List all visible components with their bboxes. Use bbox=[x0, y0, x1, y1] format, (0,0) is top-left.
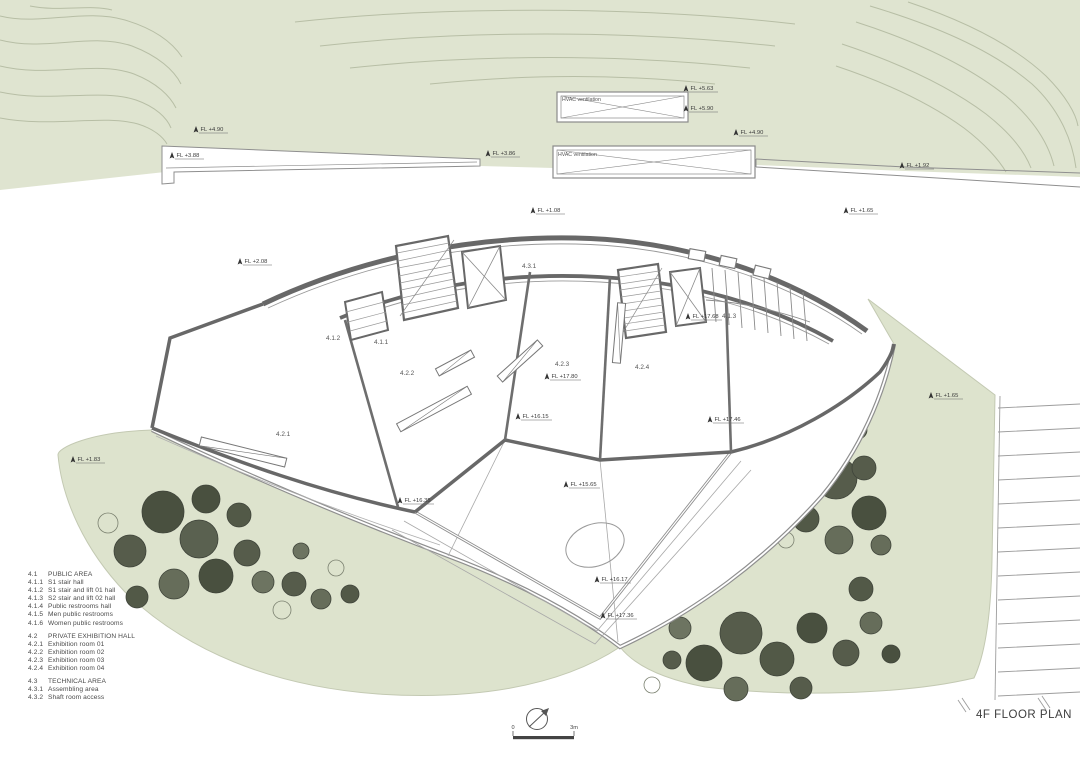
svg-text:FL +1.08: FL +1.08 bbox=[538, 208, 561, 214]
svg-text:FL +4.90: FL +4.90 bbox=[741, 130, 764, 136]
svg-text:FL +4.90: FL +4.90 bbox=[201, 127, 224, 133]
svg-text:FL +3.88: FL +3.88 bbox=[177, 153, 200, 159]
room-label-421: 4.2.1 bbox=[276, 431, 291, 438]
svg-text:FL +17.36: FL +17.36 bbox=[608, 613, 634, 619]
legend-item: 4.1.5Men public restrooms bbox=[28, 611, 135, 619]
lift-shaft-01 bbox=[462, 246, 506, 308]
svg-text:FL +5.63: FL +5.63 bbox=[691, 86, 714, 92]
room-label-413: 4.1.3 bbox=[722, 313, 737, 320]
svg-text:FL +15.65: FL +15.65 bbox=[571, 482, 597, 488]
scale-start-label: 0 bbox=[511, 725, 514, 731]
legend-item: 4.2.3Exhibition room 03 bbox=[28, 657, 135, 665]
legend-section-technical: 4.3TECHNICAL AREA 4.3.1Assembling area 4… bbox=[28, 678, 135, 702]
room-label-431: 4.3.1 bbox=[522, 263, 537, 270]
room-label-411: 4.1.1 bbox=[374, 339, 389, 346]
fl-label-8: FL +1.08 bbox=[531, 207, 565, 214]
room-label-424: 4.2.4 bbox=[635, 364, 650, 371]
svg-text:FL +17.46: FL +17.46 bbox=[715, 417, 741, 423]
svg-text:FL +3.86: FL +3.86 bbox=[493, 151, 516, 157]
legend-item: 4.2.2Exhibition room 02 bbox=[28, 649, 135, 657]
hvac-unit-2-label: HVAC ventilation bbox=[558, 152, 597, 158]
scale-end-label: 3m bbox=[570, 725, 578, 731]
svg-text:FL +16.35: FL +16.35 bbox=[405, 498, 431, 504]
legend-item: 4.2.1Exhibition room 01 bbox=[28, 641, 135, 649]
legend-item: 4.1.4Public restrooms hall bbox=[28, 603, 135, 611]
hvac-unit-1-label: HVAC ventilation bbox=[562, 97, 601, 103]
stair-block-east bbox=[618, 264, 666, 338]
fl-label-10: FL +2.08 bbox=[238, 258, 272, 265]
legend-section-title: 4.2PRIVATE EXHIBITION HALL bbox=[28, 633, 135, 641]
site-plan-drawing: HVAC ventilation HVAC ventilation bbox=[0, 0, 1080, 763]
svg-text:FL +2.08: FL +2.08 bbox=[245, 259, 268, 265]
hvac-unit-2 bbox=[553, 146, 755, 178]
legend-section-title: 4.1PUBLIC AREA bbox=[28, 571, 135, 579]
legend-section-exhibition: 4.2PRIVATE EXHIBITION HALL 4.2.1Exhibiti… bbox=[28, 633, 135, 673]
legend-item: 4.3.1Assembling area bbox=[28, 686, 135, 694]
stair-block-west bbox=[396, 236, 458, 320]
svg-text:FL +1.65: FL +1.65 bbox=[851, 208, 874, 214]
fl-label-9: FL +1.65 bbox=[844, 207, 878, 214]
legend-section-public: 4.1PUBLIC AREA 4.1.1S1 stair hall 4.1.2S… bbox=[28, 571, 135, 628]
north-arrow bbox=[527, 708, 550, 730]
svg-text:FL +16.17: FL +16.17 bbox=[602, 577, 628, 583]
svg-text:FL +1.65: FL +1.65 bbox=[936, 393, 959, 399]
legend: 4.1PUBLIC AREA 4.1.1S1 stair hall 4.1.2S… bbox=[28, 571, 135, 707]
room-label-423: 4.2.3 bbox=[555, 361, 570, 368]
svg-text:FL +1.92: FL +1.92 bbox=[907, 163, 930, 169]
room-label-412: 4.1.2 bbox=[326, 335, 341, 342]
legend-item: 4.1.1S1 stair hall bbox=[28, 579, 135, 587]
legend-item: 4.1.2S1 stair and lift 01 hall bbox=[28, 587, 135, 595]
legend-item: 4.3.2Shaft room access bbox=[28, 694, 135, 702]
legend-item: 4.2.4Exhibition room 04 bbox=[28, 665, 135, 673]
page-title: 4F FLOOR PLAN bbox=[976, 709, 1072, 721]
legend-item: 4.1.6Women public restrooms bbox=[28, 620, 135, 628]
floor-plan-sheet: HVAC ventilation HVAC ventilation bbox=[0, 0, 1080, 763]
svg-text:FL +1.83: FL +1.83 bbox=[78, 457, 101, 463]
svg-text:FL +17.80: FL +17.80 bbox=[552, 374, 578, 380]
legend-item: 4.1.3S2 stair and lift 02 hall bbox=[28, 595, 135, 603]
svg-text:FL +17.68: FL +17.68 bbox=[693, 314, 719, 320]
legend-section-title: 4.3TECHNICAL AREA bbox=[28, 678, 135, 686]
svg-text:FL +16.15: FL +16.15 bbox=[523, 414, 549, 420]
scale-bar: 0 3m bbox=[511, 725, 578, 739]
room-label-422: 4.2.2 bbox=[400, 370, 415, 377]
svg-text:FL +5.90: FL +5.90 bbox=[691, 106, 714, 112]
